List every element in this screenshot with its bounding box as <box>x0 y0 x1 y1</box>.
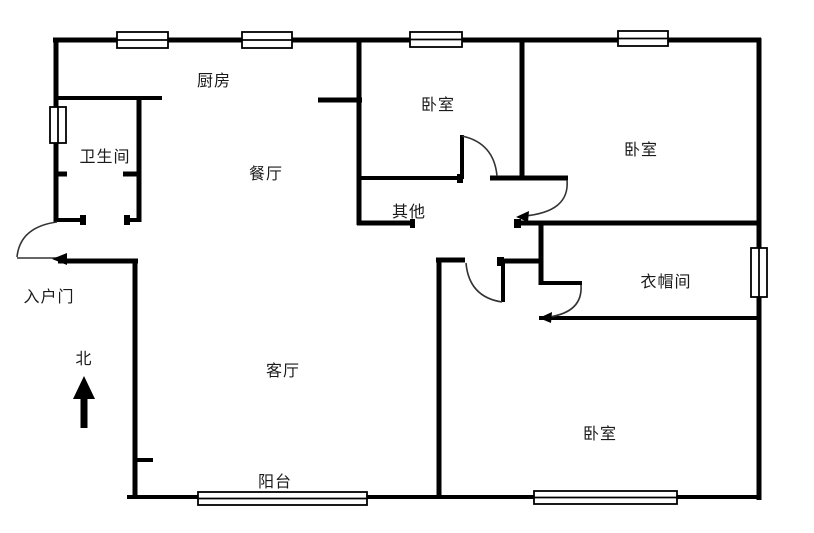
window-top-3 <box>410 32 462 47</box>
north-label: 北 <box>75 345 92 369</box>
door-arc-bedroom-top-middle <box>462 136 497 176</box>
window-top-1 <box>117 32 168 48</box>
room-label-dining: 餐厅 <box>249 160 283 184</box>
window-top-2 <box>242 32 292 48</box>
room-label-bedroom-bottom: 卧室 <box>583 420 617 444</box>
window-balcony <box>198 492 367 505</box>
room-label-living: 客厅 <box>266 357 300 381</box>
floor-plan-drawing <box>0 0 814 533</box>
room-label-cloakroom: 衣帽间 <box>640 268 691 292</box>
window-bathroom-left <box>50 107 66 143</box>
window-top-4 <box>618 31 668 46</box>
door-hall <box>516 180 567 222</box>
floor-plan: 厨房 卫生间 餐厅 卧室 卧室 其他 衣帽间 客厅 卧室 阳台 入户门 北 <box>0 0 814 533</box>
room-label-other: 其他 <box>392 198 426 222</box>
door-arc-bedroom-bottom <box>466 263 502 302</box>
window-cloakroom-right <box>751 248 767 297</box>
north-arrow-icon <box>73 376 95 428</box>
room-label-balcony: 阳台 <box>258 468 292 492</box>
room-label-bedroom-top-right: 卧室 <box>624 136 658 160</box>
wall-jamb-caps <box>80 174 521 266</box>
entrance-door-label: 入户门 <box>23 283 74 307</box>
room-label-bedroom-top-middle: 卧室 <box>421 91 455 115</box>
window-bedroom-bottom <box>534 491 677 504</box>
room-label-bathroom: 卫生间 <box>79 143 130 167</box>
room-label-kitchen: 厨房 <box>197 67 231 91</box>
door-entrance <box>17 222 67 265</box>
